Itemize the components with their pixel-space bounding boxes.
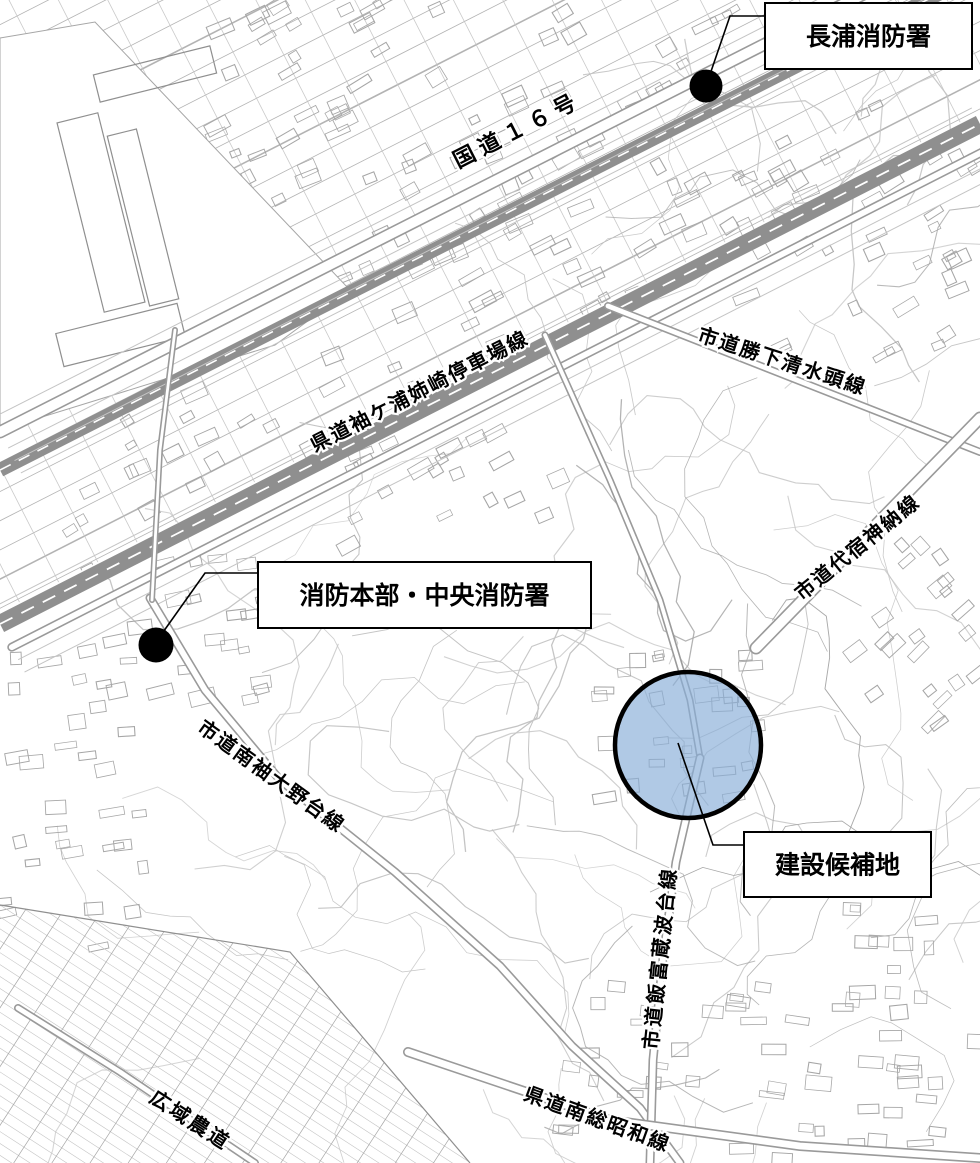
candidate-site-circle (615, 672, 761, 818)
location-dot-fire-hq-central-fire-station (139, 628, 174, 663)
location-dot-nagaura-fire-station (690, 70, 723, 103)
callout-label-fire-hq-central-fire-station: 消防本部・中央消防署 (299, 581, 549, 610)
map-canvas: 国道１６号県道袖ケ浦姉崎停車場線市道勝下清水頭線市道代宿神納線市道南袖大野台線市… (0, 0, 980, 1163)
candidate-site-layer (615, 672, 761, 818)
callout-label-nagaura-fire-station: 長浦消防署 (806, 22, 931, 51)
callout-label-construction-candidate-site: 建設候補地 (775, 851, 900, 880)
topographic-map: 国道１６号県道袖ケ浦姉崎停車場線市道勝下清水頭線市道代宿神納線市道南袖大野台線市… (0, 0, 980, 1163)
